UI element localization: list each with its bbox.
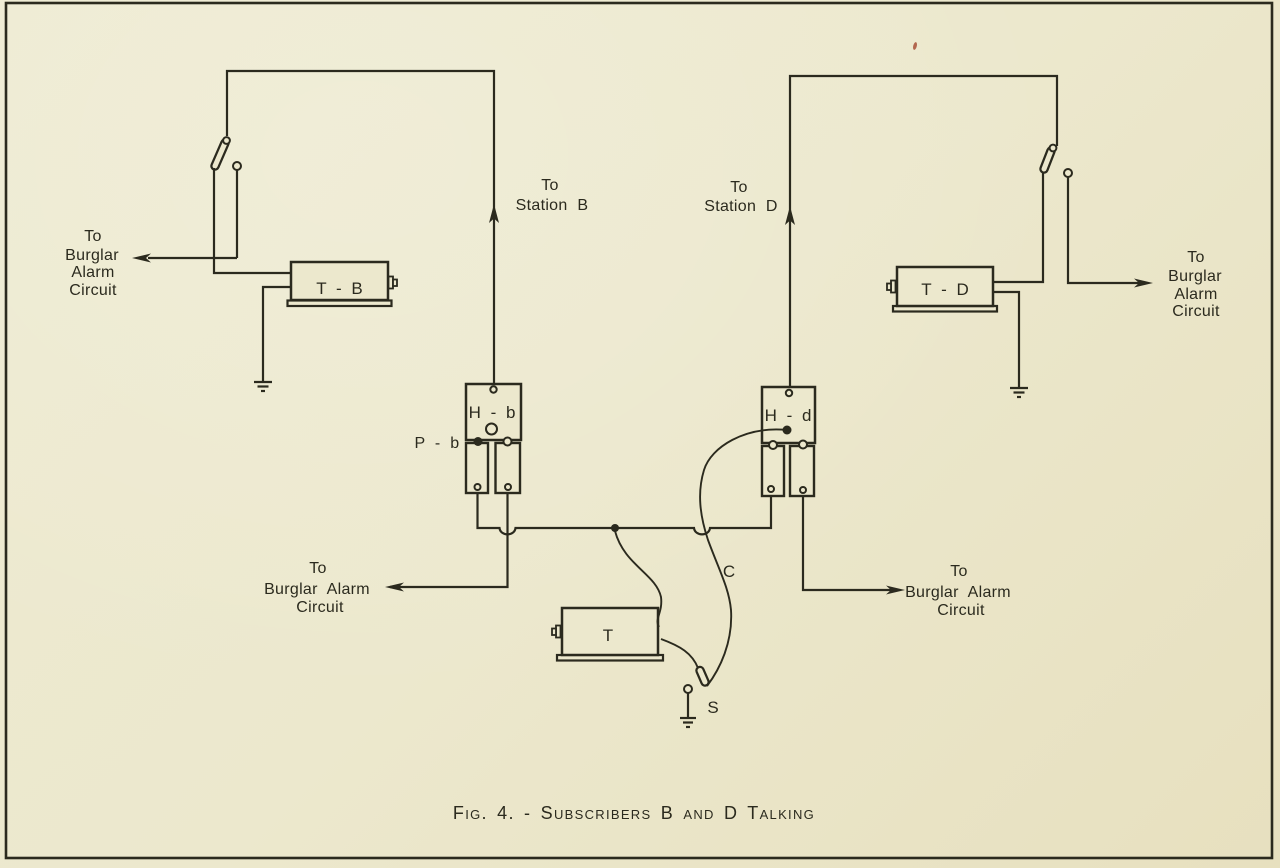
t-knob-tip [552, 629, 556, 636]
td-label: T - D [921, 280, 968, 299]
plug-pb-tip [474, 437, 483, 446]
t-label: T [603, 626, 613, 645]
plug-s-label: S [707, 698, 718, 717]
switch-pivot [1050, 145, 1057, 152]
td-knob-tip [887, 284, 891, 291]
burglar-label-bl-3: Circuit [296, 599, 344, 616]
burglar-label-br-3: Circuit [937, 602, 985, 619]
hd-left-jack-terminal [768, 486, 774, 492]
cord-c-label: C [723, 562, 735, 581]
burglar-label-tl-3: Alarm [71, 264, 114, 281]
hook-jack-hd: H - d [762, 387, 815, 496]
switch-pivot [223, 137, 230, 144]
station-d-circuit: To Station D To Burglar Alarm Circuit T … [704, 76, 1222, 619]
burglar-alarm-wire-top-right [1068, 177, 1140, 283]
junction-dot [611, 524, 619, 532]
paper-blemish [912, 42, 917, 51]
burglar-label-tl-1: To [84, 228, 102, 245]
hd-top-terminal [786, 390, 792, 396]
tb-base-plate [288, 301, 392, 307]
pb-label: P - b [415, 435, 460, 452]
to-station-b-label-line2: Station B [516, 197, 589, 214]
hb-jack-notch [504, 438, 512, 446]
hb-top-terminal [490, 386, 496, 392]
cord-t-to-plug-s [661, 639, 698, 668]
burglar-label-tr-1: To [1187, 249, 1205, 266]
switch-d [1044, 145, 1072, 177]
cord-circuit-tie-wire [478, 493, 772, 534]
plug-s [700, 671, 705, 683]
switch-b [215, 137, 241, 170]
figure-caption: Fig. 4. - Subscribers B and D Talking [453, 803, 815, 823]
burglar-alarm-wire-bottom-left [390, 493, 508, 587]
burglar-alarm-wire-bottom-right [803, 496, 892, 590]
figure-border [6, 3, 1272, 858]
to-station-b-label-line1: To [541, 177, 559, 194]
ground-symbol-s [680, 718, 696, 727]
switch-open-terminal [1064, 169, 1072, 177]
burglar-label-tr-4: Circuit [1172, 303, 1220, 320]
scanned-book-page: To Station B To Burglar Alarm Circuit T … [0, 0, 1280, 868]
to-station-d-label-line1: To [730, 179, 748, 196]
operator-circuit: T C S [478, 430, 788, 727]
hb-hole [486, 424, 497, 435]
station-b-line-wire [227, 71, 494, 384]
tb-knob-tip [393, 280, 397, 287]
tb-label: T - B [316, 279, 363, 298]
burglar-label-br-2: Burglar Alarm [905, 584, 1011, 601]
burglar-label-tl-4: Circuit [69, 282, 117, 299]
switch-to-transmitter-wire [993, 172, 1043, 282]
hb-right-jack-terminal [505, 484, 511, 490]
hd-jack-notch-right [799, 441, 807, 449]
burglar-label-bl-1: To [309, 560, 327, 577]
hd-jack-notch-left [769, 441, 777, 449]
figure-4-diagram: To Station B To Burglar Alarm Circuit T … [0, 0, 1280, 868]
hd-label: H - d [765, 406, 812, 425]
burglar-label-bl-2: Burglar Alarm [264, 581, 370, 598]
ground-symbol-b [254, 382, 272, 391]
hb-label: H - b [469, 403, 516, 422]
burglar-label-tr-3: Alarm [1174, 286, 1217, 303]
burglar-label-br-1: To [950, 563, 968, 580]
ground-symbol-d [1010, 388, 1028, 397]
plug-s-terminal [684, 685, 692, 693]
burglar-label-tr-2: Burglar [1168, 268, 1222, 285]
to-station-d-label-line2: Station D [704, 198, 778, 215]
switch-open-terminal [233, 162, 241, 170]
hb-left-jack-terminal [475, 484, 481, 490]
station-d-line-wire [790, 76, 1057, 387]
burglar-label-tl-2: Burglar [65, 247, 119, 264]
hook-jack-hb: H - b P - b [415, 384, 522, 493]
hd-right-jack-terminal [800, 487, 806, 493]
